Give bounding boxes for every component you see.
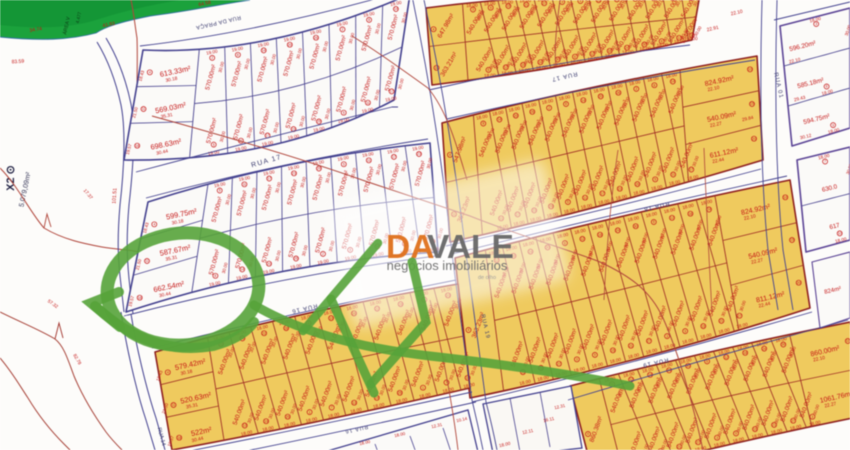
svg-text:27: 27	[633, 0, 637, 1]
svg-text:27: 27	[542, 1, 546, 5]
svg-text:26: 26	[314, 36, 318, 40]
svg-text:9: 9	[684, 329, 686, 333]
svg-text:29: 29	[635, 182, 639, 186]
svg-text:3: 3	[576, 358, 578, 362]
svg-text:11: 11	[145, 259, 149, 263]
svg-text:2: 2	[548, 106, 550, 110]
svg-text:11: 11	[671, 173, 675, 177]
svg-text:9: 9	[594, 353, 596, 357]
svg-text:21: 21	[629, 344, 633, 348]
svg-text:15: 15	[597, 0, 601, 2]
svg-text:21: 21	[524, 3, 528, 7]
svg-text:15: 15	[750, 102, 754, 106]
svg-text:27: 27	[647, 339, 651, 343]
svg-text:18.00: 18.00	[501, 0, 513, 5]
svg-text:24: 24	[707, 208, 711, 212]
svg-text:4: 4	[587, 432, 589, 436]
svg-text:11: 11	[367, 159, 371, 163]
svg-text:8: 8	[565, 102, 567, 106]
svg-text:29: 29	[317, 167, 321, 171]
svg-text:18.00: 18.00	[484, 1, 496, 7]
svg-text:8: 8	[482, 122, 484, 126]
svg-text:20: 20	[797, 281, 801, 285]
svg-text:20: 20	[514, 114, 518, 118]
svg-text:20: 20	[267, 262, 271, 266]
svg-text:17: 17	[392, 155, 396, 159]
svg-text:23: 23	[417, 152, 421, 156]
svg-text:10: 10	[838, 232, 842, 236]
svg-text:5: 5	[213, 143, 215, 147]
svg-text:26: 26	[530, 110, 534, 114]
svg-text:7: 7	[824, 160, 826, 164]
svg-text:5: 5	[343, 111, 345, 115]
svg-text:9: 9	[832, 123, 834, 127]
svg-text:17: 17	[689, 168, 693, 172]
svg-text:83.59: 83.59	[11, 59, 24, 66]
svg-text:10: 10	[329, 316, 333, 320]
svg-text:20: 20	[599, 95, 603, 99]
svg-text:18: 18	[135, 144, 139, 148]
svg-text:26: 26	[616, 91, 620, 95]
svg-text:19: 19	[264, 419, 268, 423]
svg-text:15: 15	[611, 349, 615, 353]
svg-text:21: 21	[719, 319, 723, 323]
svg-text:15: 15	[701, 324, 705, 328]
svg-text:25: 25	[286, 415, 290, 419]
svg-text:14: 14	[262, 49, 266, 53]
svg-text:6: 6	[564, 241, 566, 245]
svg-text:1: 1	[422, 386, 424, 390]
svg-text:22: 22	[262, 331, 266, 335]
svg-text:2: 2	[322, 252, 324, 256]
svg-text:10: 10	[783, 196, 787, 200]
svg-text:4: 4	[167, 371, 169, 375]
svg-text:18.00: 18.00	[466, 3, 478, 9]
svg-text:1: 1	[309, 410, 311, 414]
svg-text:4: 4	[449, 153, 451, 157]
svg-text:18: 18	[138, 296, 142, 300]
svg-text:5: 5	[343, 162, 345, 166]
svg-text:14: 14	[671, 80, 675, 84]
svg-text:11: 11	[583, 196, 587, 200]
svg-text:12: 12	[580, 237, 584, 241]
svg-text:24: 24	[616, 229, 620, 233]
svg-text:11: 11	[142, 107, 146, 111]
svg-text:7: 7	[331, 406, 333, 410]
svg-text:4: 4	[468, 328, 470, 332]
svg-text:14: 14	[497, 118, 501, 122]
svg-text:101.51: 101.51	[111, 188, 118, 204]
svg-text:4: 4	[149, 71, 151, 75]
svg-text:13: 13	[352, 401, 356, 405]
svg-text:17: 17	[390, 90, 394, 94]
svg-text:8: 8	[653, 83, 655, 87]
svg-text:12: 12	[670, 216, 674, 220]
svg-text:17: 17	[267, 177, 271, 181]
svg-text:18: 18	[177, 436, 181, 440]
svg-text:6: 6	[653, 220, 655, 224]
svg-text:8: 8	[368, 18, 370, 22]
svg-text:30: 30	[781, 343, 785, 347]
svg-text:negócios imobiliários: negócios imobiliários	[387, 258, 508, 273]
svg-text:30: 30	[634, 224, 638, 228]
svg-text:9: 9	[579, 0, 581, 3]
svg-text:3: 3	[472, 8, 474, 12]
svg-text:8: 8	[214, 274, 216, 278]
svg-text:15: 15	[790, 238, 794, 242]
svg-text:5: 5	[654, 178, 656, 182]
svg-text:18: 18	[743, 351, 747, 355]
svg-text:2: 2	[211, 56, 213, 60]
svg-text:9: 9	[490, 6, 492, 10]
svg-text:18.00: 18.00	[519, 0, 531, 3]
svg-text:4: 4	[433, 27, 435, 31]
svg-text:14: 14	[240, 268, 244, 272]
svg-text:10: 10	[846, 339, 850, 343]
svg-text:20: 20	[288, 43, 292, 47]
svg-text:28: 28	[284, 326, 288, 330]
svg-text:23: 23	[618, 187, 622, 191]
svg-text:de olho: de olho	[478, 275, 496, 281]
svg-text:23: 23	[292, 172, 296, 176]
svg-text:14: 14	[581, 98, 585, 102]
svg-text:27: 27	[557, 362, 561, 366]
svg-text:8: 8	[237, 53, 239, 57]
svg-text:3: 3	[815, 22, 817, 26]
svg-text:25: 25	[398, 391, 402, 395]
svg-text:6: 6	[706, 360, 708, 364]
svg-text:18.00: 18.00	[657, 42, 669, 48]
svg-text:18: 18	[688, 212, 692, 216]
svg-text:14: 14	[394, 7, 398, 11]
svg-text:15: 15	[506, 4, 510, 8]
svg-text:3: 3	[666, 334, 668, 338]
svg-text:12: 12	[724, 355, 728, 359]
svg-text:11: 11	[243, 183, 247, 187]
svg-text:13: 13	[243, 424, 247, 428]
svg-text:11: 11	[172, 403, 176, 407]
svg-text:3: 3	[653, 0, 655, 1]
svg-text:20: 20	[752, 137, 756, 141]
svg-text:2: 2	[635, 87, 637, 91]
svg-text:5: 5	[567, 200, 569, 204]
svg-text:11: 11	[366, 101, 370, 105]
svg-text:21: 21	[615, 0, 619, 2]
svg-text:18: 18	[598, 233, 602, 237]
svg-text:4: 4	[153, 223, 155, 227]
svg-text:24: 24	[762, 347, 766, 351]
svg-text:27: 27	[738, 314, 742, 318]
svg-text:6: 6	[826, 85, 828, 89]
svg-text:29: 29	[317, 120, 321, 124]
svg-text:2: 2	[342, 28, 344, 32]
svg-text:17: 17	[600, 192, 604, 196]
svg-text:26: 26	[294, 257, 298, 261]
svg-text:5: 5	[219, 189, 221, 193]
svg-text:10: 10	[748, 68, 752, 72]
